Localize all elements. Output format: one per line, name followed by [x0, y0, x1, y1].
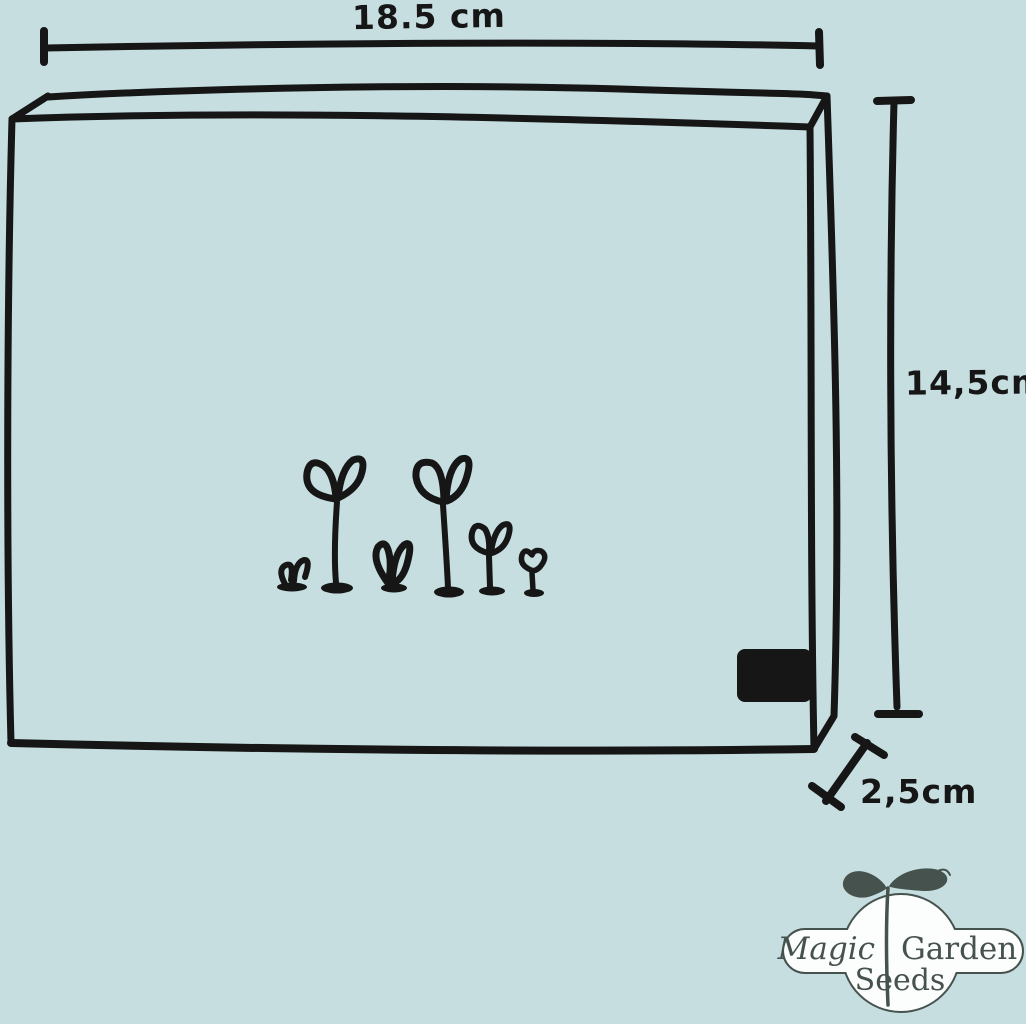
depth-dimension-label: 2,5cm — [860, 772, 977, 811]
sprout-icon — [307, 459, 363, 594]
sprout-icon — [376, 544, 410, 593]
height-dimension-line — [877, 100, 919, 714]
box-bottom-edge — [11, 743, 814, 751]
box-left-edge — [8, 119, 12, 743]
label-sticker — [737, 649, 812, 702]
sprout-icon — [472, 524, 510, 595]
sprout-icon — [521, 551, 544, 598]
box-top-back-edge — [48, 87, 827, 97]
height-dimension-label: 14,5cm — [905, 362, 1026, 402]
box-side-right-edge — [814, 96, 837, 749]
width-dimension-line — [44, 31, 820, 65]
hand-drawn-diagram — [0, 0, 1026, 1024]
logo-word-garden: Garden — [901, 931, 1017, 967]
seed-box-drawing — [8, 87, 837, 751]
sprout-icon — [416, 458, 469, 597]
width-dimension-label: 18.5 cm — [352, 0, 506, 37]
sprouts-drawing — [277, 458, 545, 597]
product-dimension-illustration: 18.5 cm 14,5cm 2,5cm Magic Garden Seeds — [0, 0, 1026, 1024]
logo-word-magic: Magic — [775, 931, 875, 967]
box-front-top-edge — [12, 115, 810, 127]
logo-word-seeds: Seeds — [840, 963, 960, 998]
sprout-icon — [277, 560, 308, 592]
